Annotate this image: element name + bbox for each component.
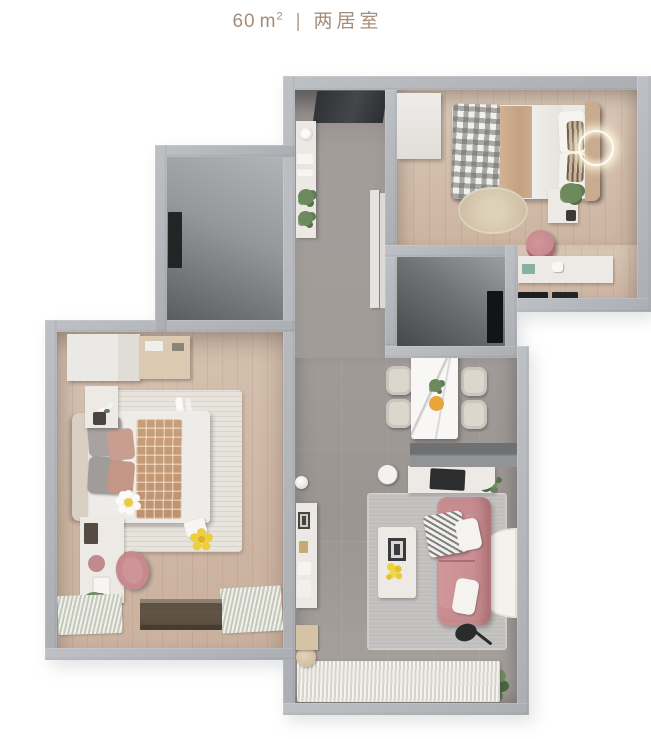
dining-chair	[386, 366, 412, 395]
round-side-table	[377, 464, 398, 485]
tan-duvet-fold	[500, 106, 533, 198]
wall	[385, 90, 397, 245]
window-recess	[140, 599, 222, 630]
wall	[45, 320, 295, 332]
plant-pot	[566, 210, 576, 221]
wall	[385, 245, 517, 257]
wall	[45, 320, 57, 660]
floor-plan	[0, 0, 651, 739]
table-plant	[429, 379, 442, 392]
nightstand-box	[93, 412, 106, 425]
accent-pillow	[106, 428, 135, 462]
flower-vase	[88, 389, 110, 409]
half-round-rug	[487, 528, 517, 618]
window-blind-mat	[57, 594, 122, 635]
plant	[560, 183, 582, 203]
photo-frame	[388, 538, 406, 561]
wall	[283, 76, 651, 90]
wall	[637, 76, 651, 312]
shelf-item	[297, 580, 311, 597]
book	[522, 264, 535, 274]
wall	[155, 145, 295, 157]
window-blind-mat	[220, 585, 283, 633]
side-cabinet	[296, 625, 318, 650]
dining-chair	[461, 367, 487, 396]
round-jute-rug	[458, 187, 528, 234]
wall	[505, 245, 517, 358]
plant	[298, 189, 314, 205]
art-frame	[298, 512, 310, 529]
cup	[552, 262, 563, 272]
yellow-flowers	[384, 561, 406, 583]
wall-panel	[168, 212, 182, 268]
wall	[517, 346, 529, 715]
utility-room-top-left-floor	[167, 157, 283, 320]
ball-lamp	[295, 476, 308, 489]
wall	[385, 346, 517, 358]
desk-accessory	[88, 555, 105, 572]
balcony-ribbed-mat	[297, 661, 500, 702]
wall	[283, 703, 529, 715]
wall-light-icon	[578, 130, 614, 166]
stool	[296, 647, 316, 667]
tv	[429, 468, 465, 491]
floor-plan-page: 60m2|两居室	[0, 0, 651, 739]
plaid-blanket	[451, 103, 501, 199]
entry-mat	[313, 91, 387, 123]
door-panel	[487, 291, 503, 343]
dining-chair	[386, 399, 412, 428]
wall	[517, 298, 651, 312]
fruit-plate	[429, 396, 444, 411]
wardrobe	[67, 334, 140, 381]
partition-wall	[410, 443, 517, 467]
wall	[283, 76, 295, 715]
headboard	[72, 413, 88, 521]
bowl	[299, 127, 313, 141]
open-shelf	[139, 336, 190, 379]
sliding-door-panel	[370, 190, 379, 308]
shelf-item	[299, 541, 308, 553]
desk-frame	[84, 523, 98, 544]
wardrobe	[397, 93, 441, 159]
dining-chair	[461, 400, 487, 429]
plant	[298, 211, 313, 226]
shelf-item	[298, 562, 311, 575]
wall	[45, 648, 295, 660]
yellow-flower-cushion	[189, 527, 214, 552]
daisy-pillow	[115, 489, 142, 516]
tan-plaid-blanket	[136, 419, 183, 519]
wall	[155, 145, 167, 332]
wall	[385, 257, 397, 346]
shelf-items	[297, 154, 313, 176]
